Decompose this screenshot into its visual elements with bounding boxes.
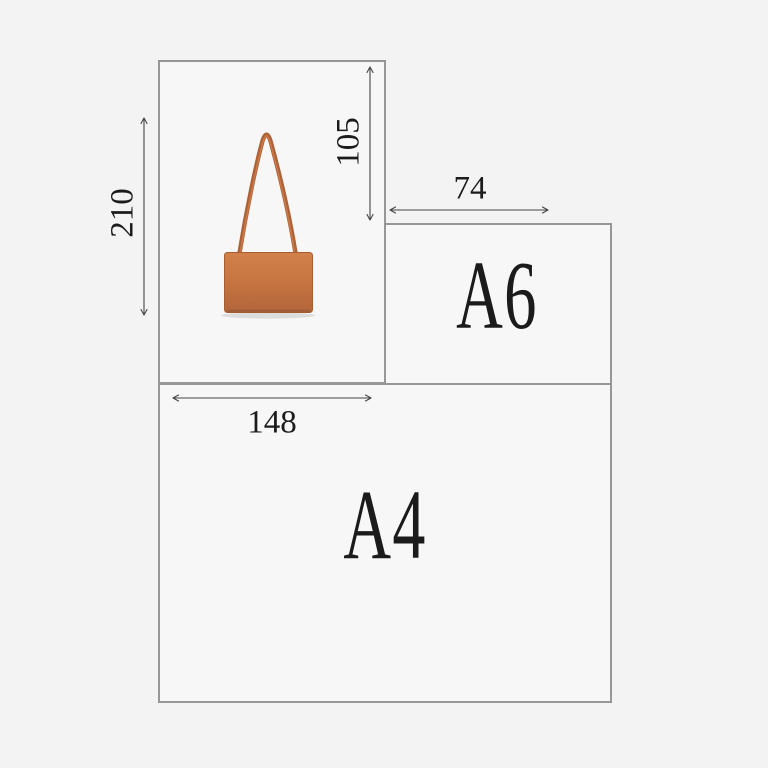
a4-label: A4 <box>343 475 426 575</box>
dimension-label-left-vertical: 210 <box>107 188 140 238</box>
size-comparison-diagram: A6 A4 210 105 74 148 <box>0 0 768 768</box>
a6-label: A6 <box>456 247 538 345</box>
dimension-label-a4-width: 148 <box>247 407 297 440</box>
bag-photo-panel <box>158 60 386 384</box>
dimension-label-a6-width: 74 <box>454 173 487 206</box>
dimension-label-inner-vertical: 105 <box>333 117 366 167</box>
